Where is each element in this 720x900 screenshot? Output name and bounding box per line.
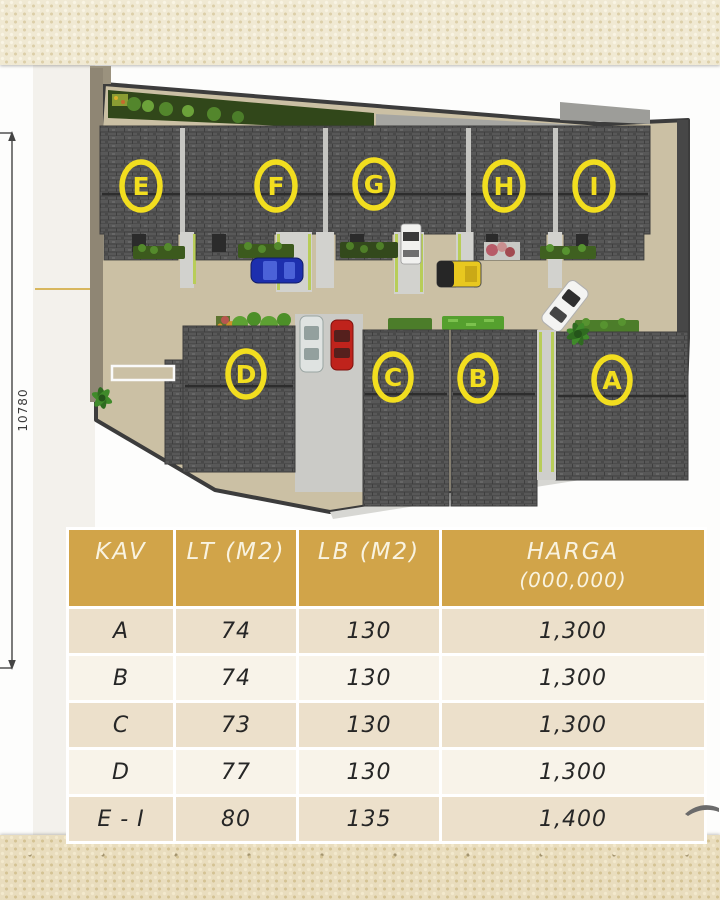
cell-lt: 77	[176, 750, 296, 794]
svg-text:D: D	[236, 360, 257, 389]
path-between-B-A	[537, 330, 556, 480]
pickup-yellow	[437, 261, 481, 287]
cell-lt: 74	[176, 609, 296, 653]
svg-text:C: C	[384, 363, 402, 392]
house-unit-C	[363, 330, 449, 506]
site-plan: E F G H I D C B	[88, 64, 700, 522]
svg-text:I: I	[589, 172, 598, 201]
cell-harga: 1,300	[442, 656, 704, 700]
cell-kav: D	[69, 750, 173, 794]
header-harga-line2: (000,000)	[443, 568, 703, 592]
dimension-line	[0, 133, 12, 668]
slide: 10780	[0, 0, 720, 900]
car-red	[331, 320, 353, 370]
cell-kav: B	[69, 656, 173, 700]
table-row-b: B 74 130 1,300	[69, 656, 704, 700]
svg-text:F: F	[267, 172, 284, 201]
cell-kav: E - I	[69, 797, 173, 841]
van-white	[401, 224, 421, 264]
right-boundary-wall	[677, 120, 688, 338]
cell-lb: 135	[299, 797, 439, 841]
cell-harga: 1,300	[442, 703, 704, 747]
header-harga: HARGA (000,000)	[442, 530, 704, 606]
house-unit-B	[451, 330, 537, 506]
car-silver	[300, 316, 323, 372]
house-unit-G	[326, 126, 469, 234]
cell-lb: 130	[299, 703, 439, 747]
cell-kav: A	[69, 609, 173, 653]
table-row-c: C 73 130 1,300	[69, 703, 704, 747]
house-unit-I	[556, 126, 650, 234]
header-lb: LB (M2)	[299, 530, 439, 606]
header-harga-line1: HARGA	[443, 539, 703, 565]
background-texture-top	[0, 0, 720, 65]
cell-harga: 1,400	[442, 797, 704, 841]
gold-accent-line	[35, 288, 93, 290]
cell-kav: C	[69, 703, 173, 747]
cell-harga: 1,300	[442, 609, 704, 653]
svg-text:G: G	[364, 170, 385, 199]
dimension-annotation: 10780	[0, 0, 40, 900]
house-unit-D	[183, 326, 295, 472]
left-boundary-wall-lower	[90, 68, 103, 402]
parking-pad-outline	[112, 366, 174, 380]
cell-lt: 74	[176, 656, 296, 700]
header-lt: LT (M2)	[176, 530, 296, 606]
car-blue	[251, 258, 303, 283]
svg-text:A: A	[602, 366, 622, 395]
table-row-a: A 74 130 1,300	[69, 609, 704, 653]
svg-text:E: E	[132, 172, 149, 201]
cell-lb: 130	[299, 609, 439, 653]
cell-harga: 1,300	[442, 750, 704, 794]
svg-text:H: H	[494, 172, 515, 201]
header-kav: KAV	[69, 530, 173, 606]
svg-text:B: B	[468, 364, 487, 393]
table-row-d: D 77 130 1,300	[69, 750, 704, 794]
cell-lb: 130	[299, 750, 439, 794]
price-table: KAV LT (M2) LB (M2) HARGA (000,000) A 74…	[66, 527, 707, 844]
cell-lt: 73	[176, 703, 296, 747]
dimension-value: 10780	[16, 388, 30, 431]
table-row-e-i: E - I 80 135 1,400	[69, 797, 704, 841]
house-unit-A	[556, 332, 688, 480]
cell-lb: 130	[299, 656, 439, 700]
cell-lt: 80	[176, 797, 296, 841]
background-texture-bottom	[0, 835, 720, 900]
corner-flourish	[684, 800, 720, 818]
table-header-row: KAV LT (M2) LB (M2) HARGA (000,000)	[69, 530, 704, 606]
